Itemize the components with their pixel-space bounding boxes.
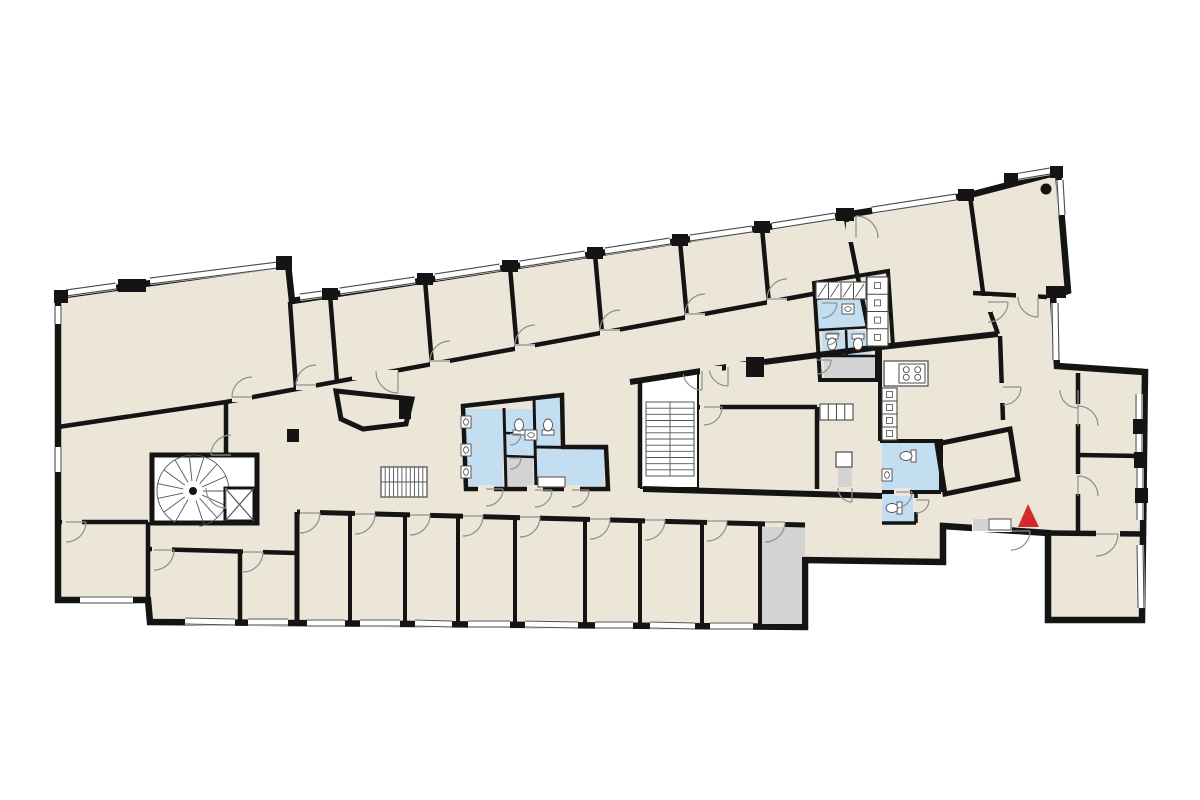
wall-pier [672, 234, 688, 246]
stove-top [899, 364, 925, 383]
door-opening [982, 296, 992, 312]
door-opening [520, 514, 540, 522]
door-opening [1016, 290, 1038, 299]
window [1055, 303, 1056, 360]
door-opening [846, 222, 855, 242]
door-opening [707, 518, 727, 526]
wall [1000, 336, 1003, 420]
wall-pier [958, 189, 974, 201]
entrance-mat [973, 519, 988, 531]
wall-pier [1004, 173, 1018, 185]
sink [461, 466, 471, 478]
wall-pier [399, 399, 411, 419]
wall [1078, 455, 1140, 456]
wall-pier [322, 288, 338, 300]
door-opening [300, 508, 320, 516]
window [1060, 180, 1062, 215]
window [415, 623, 452, 624]
door-opening [564, 485, 580, 493]
cabinet [836, 452, 852, 467]
wall-pier [276, 256, 292, 270]
wall-pier [1135, 488, 1148, 503]
window [525, 624, 578, 625]
wall-pier [502, 260, 518, 272]
window [650, 625, 695, 626]
entrance-door-panel [989, 519, 1011, 530]
door-opening [700, 366, 722, 375]
door-opening [645, 517, 665, 525]
service-room [824, 357, 877, 380]
wet-room [882, 441, 941, 492]
wall-pier [417, 273, 433, 285]
door-opening [726, 362, 748, 371]
wall [504, 408, 506, 488]
service-room [761, 523, 805, 624]
wall-pier [1133, 419, 1146, 434]
column [287, 429, 299, 442]
round-column [1041, 184, 1052, 195]
door-opening [152, 545, 172, 553]
sink [461, 416, 471, 428]
stair-newel [189, 487, 197, 495]
sink [525, 430, 537, 440]
wall-pier [1046, 286, 1066, 298]
wall [534, 397, 536, 488]
building-footprint [58, 172, 1145, 627]
window [300, 294, 322, 297]
window [185, 621, 235, 622]
wall [846, 330, 847, 356]
sink [882, 469, 892, 481]
wall [536, 447, 606, 448]
wall-pier [1050, 166, 1063, 178]
wall-pier [587, 247, 603, 259]
service-room [506, 457, 533, 486]
shower-tray [538, 477, 565, 487]
door-opening [765, 519, 785, 527]
floor-plan-svg [0, 0, 1200, 800]
floor-plan-canvas [0, 0, 1200, 800]
wall-pier [746, 357, 764, 377]
wall-pier [754, 221, 770, 233]
door-opening [998, 383, 1005, 403]
wall-pier [836, 208, 854, 221]
wet-room [466, 409, 503, 486]
service-room [838, 468, 852, 487]
sink [461, 444, 471, 456]
window [1140, 545, 1141, 608]
sink [842, 304, 854, 314]
floor-plan-page [0, 0, 1200, 800]
door-opening [352, 370, 398, 380]
wall-pier [1134, 452, 1147, 468]
wall [506, 456, 534, 457]
door-opening [1096, 529, 1120, 537]
wall [1048, 533, 1143, 534]
wall-pier [54, 290, 68, 303]
wall-pier [118, 279, 146, 292]
